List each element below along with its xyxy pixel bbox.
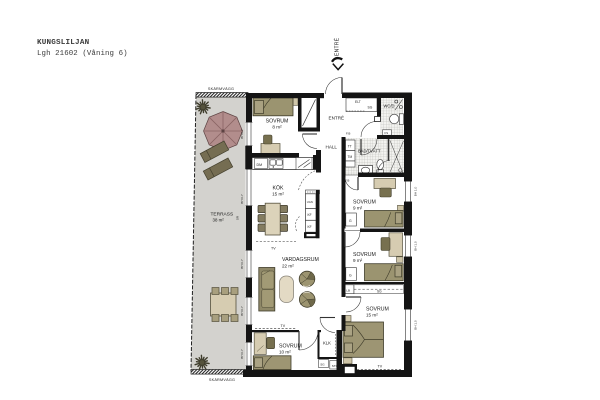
svg-text:15 m²: 15 m² [366,313,378,318]
svg-text:TM: TM [348,155,353,159]
svg-text:SKÄRMVÄGG: SKÄRMVÄGG [208,87,234,91]
svg-text:KUNGSLILJAN: KUNGSLILJAN [37,39,90,47]
svg-text:KF: KF [308,213,312,217]
svg-text:15 m²: 15 m² [272,192,284,197]
svg-text:Lgh 21602 (Våning 6): Lgh 21602 (Våning 6) [37,49,128,58]
svg-text:SG: SG [320,363,325,367]
svg-text:SOVRUM: SOVRUM [353,200,376,206]
svg-text:BH 1.0: BH 1.0 [414,186,418,196]
svg-text:TV: TV [281,324,286,328]
svg-text:SG: SG [377,289,382,293]
svg-text:ENTRÉ: ENTRÉ [329,115,345,121]
svg-text:10 m²: 10 m² [279,350,291,355]
svg-text:TV: TV [271,247,276,251]
svg-text:WC/D: WC/D [384,104,395,109]
svg-text:BH 0.7: BH 0.7 [240,194,244,204]
svg-text:ELT: ELT [355,100,361,104]
svg-text:F.B: F.B [346,132,350,136]
svg-text:TV: TV [378,365,383,369]
svg-text:ENTRÉ: ENTRÉ [334,37,341,56]
svg-text:SKÄRMVÄGG: SKÄRMVÄGG [209,378,235,382]
svg-text:BH 0.7: BH 0.7 [240,259,244,269]
svg-text:38 m²: 38 m² [213,217,225,222]
svg-text:BH 0.7: BH 0.7 [240,129,244,139]
svg-text:BH 0.7: BH 0.7 [240,306,244,316]
svg-text:SOVRUM: SOVRUM [366,307,389,313]
svg-text:G: G [349,219,352,223]
svg-text:TT: TT [348,144,352,148]
svg-text:9 m²: 9 m² [353,258,363,263]
svg-text:HALL: HALL [326,145,338,150]
svg-text:SOVRUM: SOVRUM [279,344,302,350]
svg-text:FS: FS [385,131,389,135]
svg-text:DM: DM [257,163,263,167]
svg-text:SG: SG [368,105,373,109]
svg-text:KF: KF [308,225,312,229]
svg-text:BAD/TVÄTT: BAD/TVÄTT [358,149,381,154]
svg-text:STI: STI [332,364,337,368]
svg-text:VARDAGSRUM: VARDAGSRUM [282,257,319,263]
svg-text:BH 1.0: BH 1.0 [414,241,418,251]
svg-text:LB: LB [346,288,350,292]
svg-text:KLK: KLK [323,341,331,346]
svg-text:SOVRUM: SOVRUM [353,252,376,258]
svg-text:8 m²: 8 m² [272,125,282,130]
svg-text:9 m²: 9 m² [353,206,363,211]
svg-text:BH 0.7: BH 0.7 [240,349,244,359]
svg-text:BH 1.0: BH 1.0 [414,320,418,330]
svg-text:SOVRUM: SOVRUM [266,119,289,125]
svg-text:22 m²: 22 m² [282,263,294,268]
svg-text:KÖK: KÖK [273,185,284,192]
svg-text:F.B: F.B [345,178,349,182]
svg-text:G: G [349,273,352,277]
svg-text:UGN: UGN [307,200,313,204]
